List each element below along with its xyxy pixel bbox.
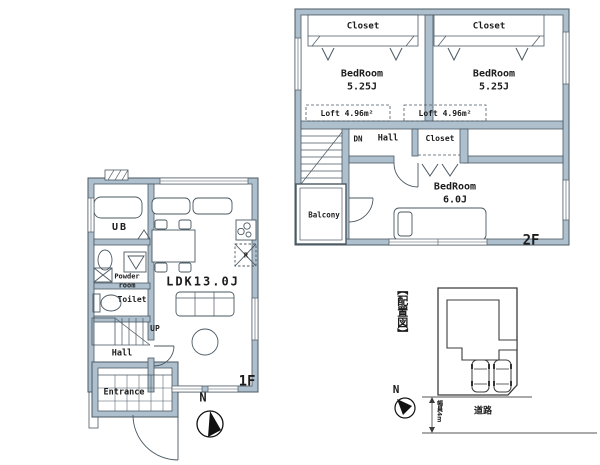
compass-icon: [193, 406, 229, 442]
bedroom-main-label: BedRoom 6.0J: [434, 182, 476, 207]
refrigerator-label: R: [244, 252, 248, 261]
balcony-label: Balcony: [308, 210, 340, 219]
hall-1f-label: Hall: [112, 349, 132, 360]
floor-plan-image: Closet Closet BedRoom 5.25J BedRoom 5.25…: [0, 0, 600, 465]
site-compass-north-label: N: [393, 383, 400, 397]
entrance-label: Entrance: [104, 388, 145, 399]
bedroom-left-name: BedRoom: [341, 69, 383, 82]
closet-right-label: Closet: [473, 21, 506, 32]
bedroom-right-size: 5.25J: [473, 81, 515, 94]
stairs-dn-label: DN: [353, 134, 362, 143]
bedroom-left-label: BedRoom 5.25J: [341, 69, 383, 94]
hall-2f-label: Hall: [378, 134, 398, 145]
powder-room-label: Powder room: [108, 272, 146, 290]
floor1-plan-drawing: [84, 168, 268, 465]
closet-left-label: Closet: [347, 21, 380, 32]
floor1-label: 1F: [239, 373, 256, 391]
bedroom-right-name: BedRoom: [473, 69, 515, 82]
road-label: 道路: [474, 406, 492, 417]
site-plan-title: 【配置図】: [395, 284, 409, 339]
ldk-label: LDK13.0J: [166, 275, 240, 290]
road-width-label: 幅員4m: [435, 400, 443, 422]
loft-right-label: Loft 4.96m²: [419, 109, 472, 119]
floor2-label: 2F: [523, 232, 540, 250]
closet-mid-label: Closet: [426, 134, 455, 144]
compass-north-label: N: [199, 391, 206, 406]
stairs-up-label: UP: [150, 324, 160, 334]
bedroom-right-label: BedRoom 5.25J: [473, 69, 515, 94]
bath-label: UB: [112, 222, 128, 235]
bedroom-left-size: 5.25J: [341, 81, 383, 94]
bedroom-main-name: BedRoom: [434, 182, 476, 195]
bedroom-main-size: 6.0J: [434, 194, 476, 207]
loft-left-label: Loft 4.96m²: [321, 109, 374, 119]
site-compass-icon: [390, 394, 422, 426]
toilet-label: Toilet: [118, 295, 147, 305]
